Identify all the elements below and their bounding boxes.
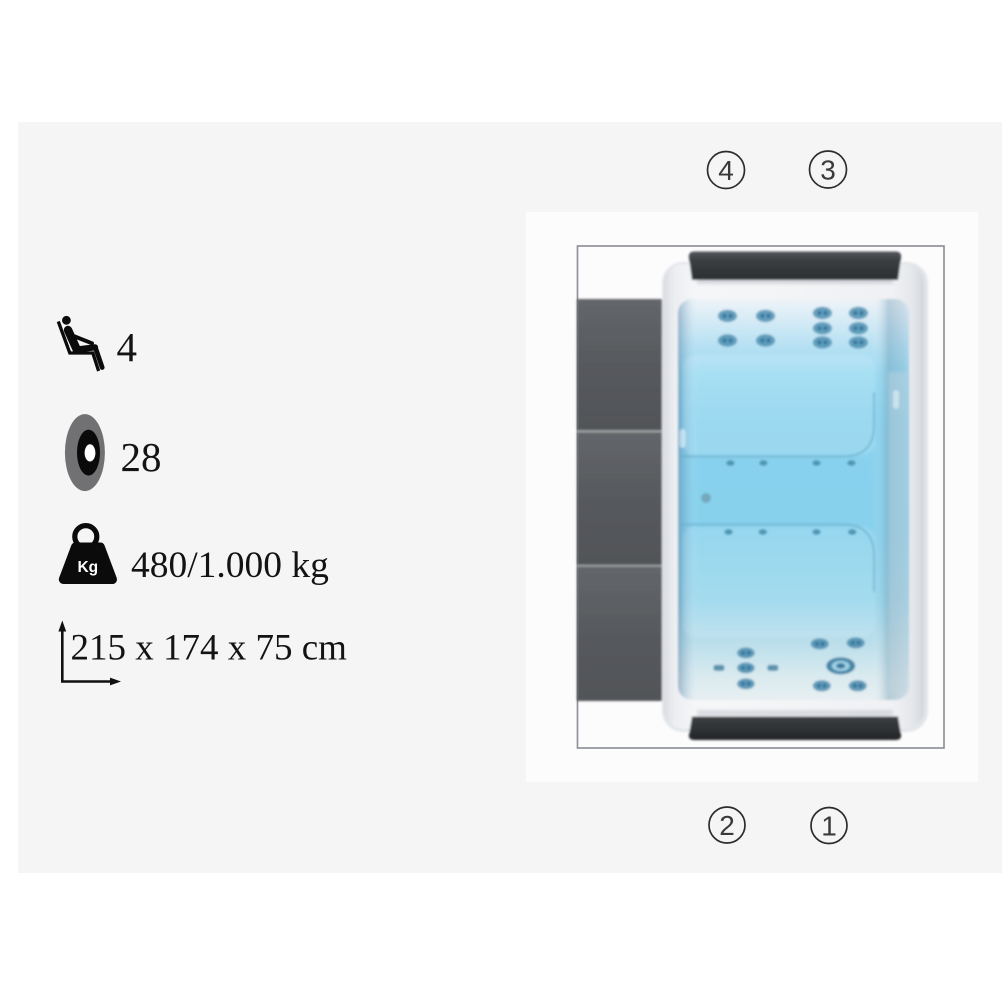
svg-text:480/1.000 kg: 480/1.000 kg <box>131 545 329 586</box>
svg-text:28: 28 <box>121 434 162 480</box>
svg-text:3: 3 <box>820 155 836 186</box>
svg-text:4: 4 <box>117 324 138 370</box>
svg-text:4: 4 <box>718 155 734 186</box>
svg-text:215 x 174 x 75 cm: 215 x 174 x 75 cm <box>71 628 348 669</box>
svg-text:1: 1 <box>821 811 837 842</box>
svg-text:Kg: Kg <box>77 559 98 576</box>
svg-text:2: 2 <box>719 810 735 841</box>
